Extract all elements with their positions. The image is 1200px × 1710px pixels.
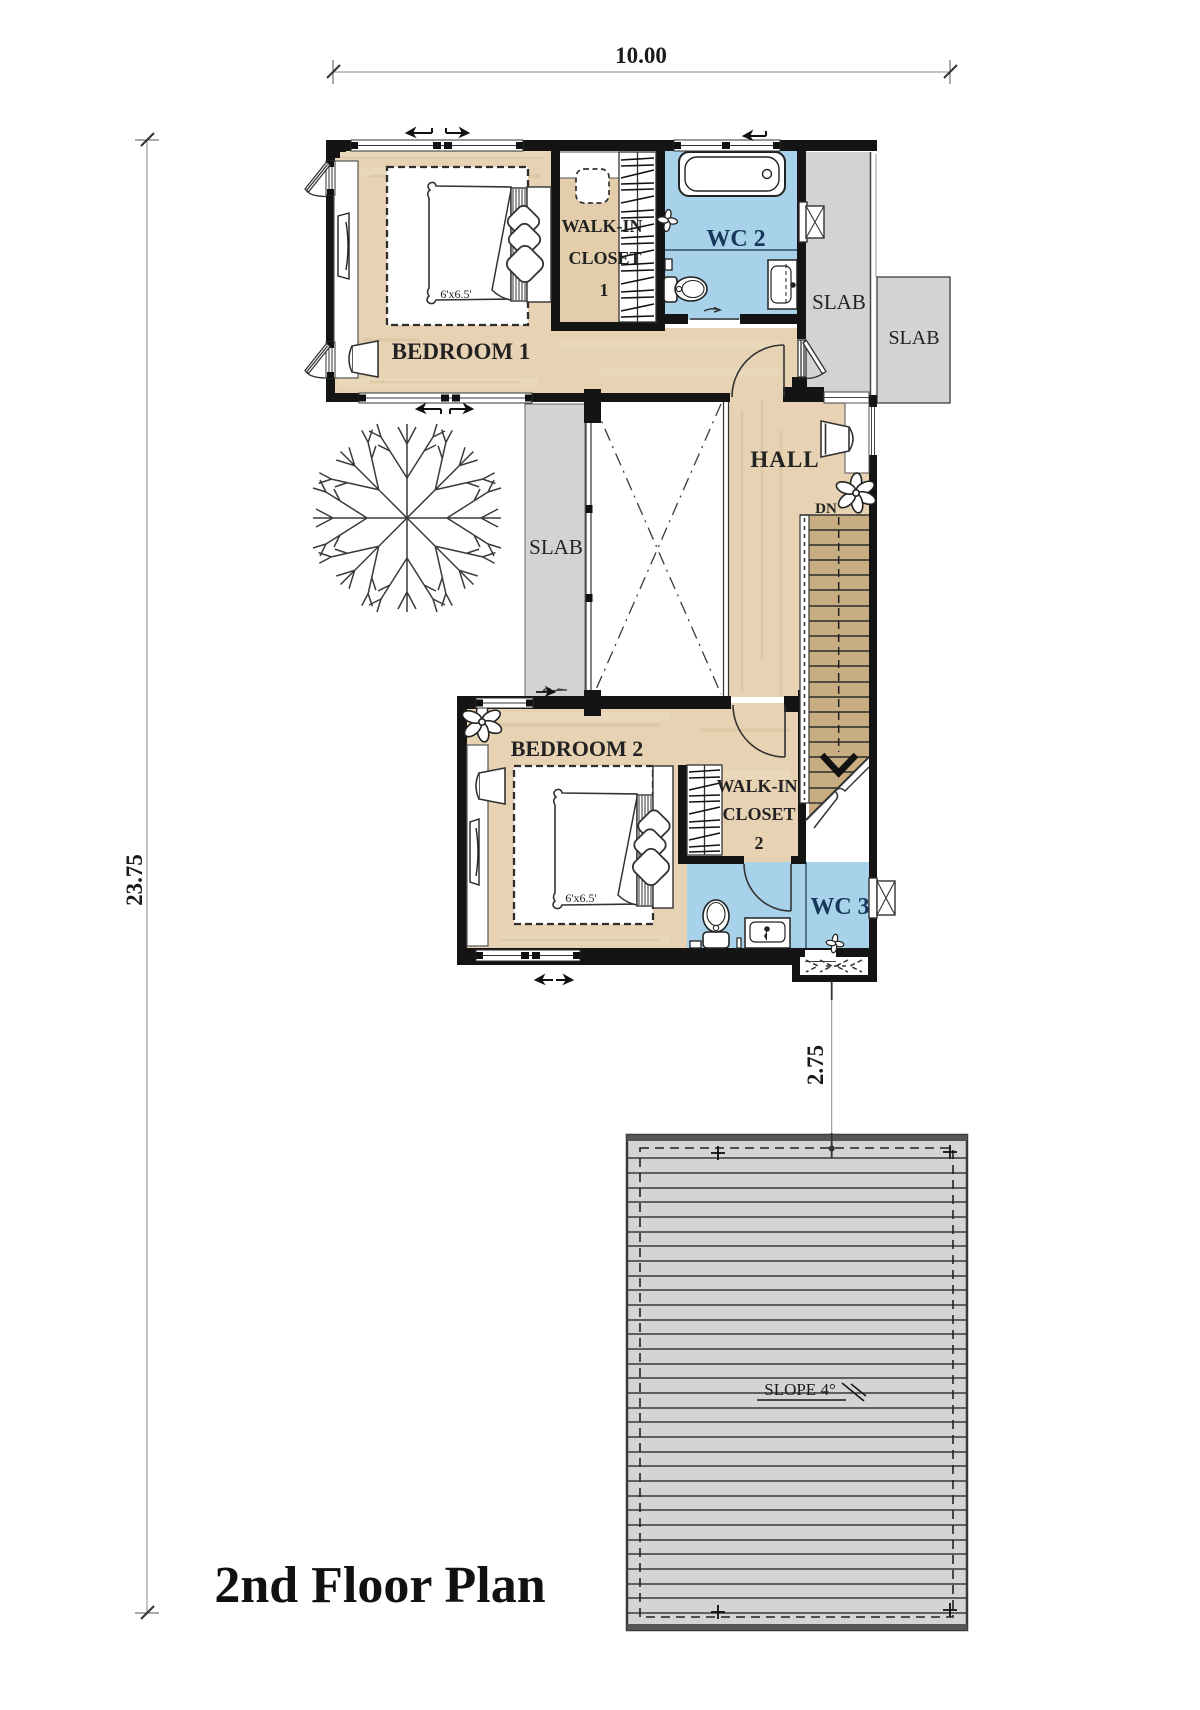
svg-text:BEDROOM 1: BEDROOM 1 [392, 339, 531, 364]
svg-text:SLAB: SLAB [529, 535, 583, 559]
svg-text:SLOPE 4°: SLOPE 4° [764, 1380, 836, 1399]
svg-text:DN: DN [815, 501, 837, 517]
svg-text:CLOSET: CLOSET [568, 248, 641, 268]
svg-text:BEDROOM 2: BEDROOM 2 [511, 736, 644, 761]
svg-text:2: 2 [755, 833, 764, 853]
svg-text:1: 1 [600, 280, 609, 300]
svg-text:HALL: HALL [750, 447, 819, 472]
svg-text:10.00: 10.00 [615, 43, 667, 68]
svg-text:2.75: 2.75 [803, 1045, 828, 1085]
svg-text:WALK-IN: WALK-IN [716, 776, 797, 796]
svg-text:23.75: 23.75 [122, 854, 147, 906]
svg-text:WALK-IN: WALK-IN [561, 216, 642, 236]
svg-text:6'x6.5': 6'x6.5' [565, 891, 596, 905]
svg-text:CLOSET: CLOSET [722, 804, 795, 824]
svg-text:2nd Floor Plan: 2nd Floor Plan [214, 1557, 545, 1614]
svg-text:6'x6.5': 6'x6.5' [440, 287, 471, 301]
svg-text:WC 3: WC 3 [810, 894, 869, 920]
svg-text:SLAB: SLAB [888, 327, 939, 349]
svg-text:SLAB: SLAB [812, 290, 866, 314]
svg-text:WC 2: WC 2 [706, 226, 765, 252]
